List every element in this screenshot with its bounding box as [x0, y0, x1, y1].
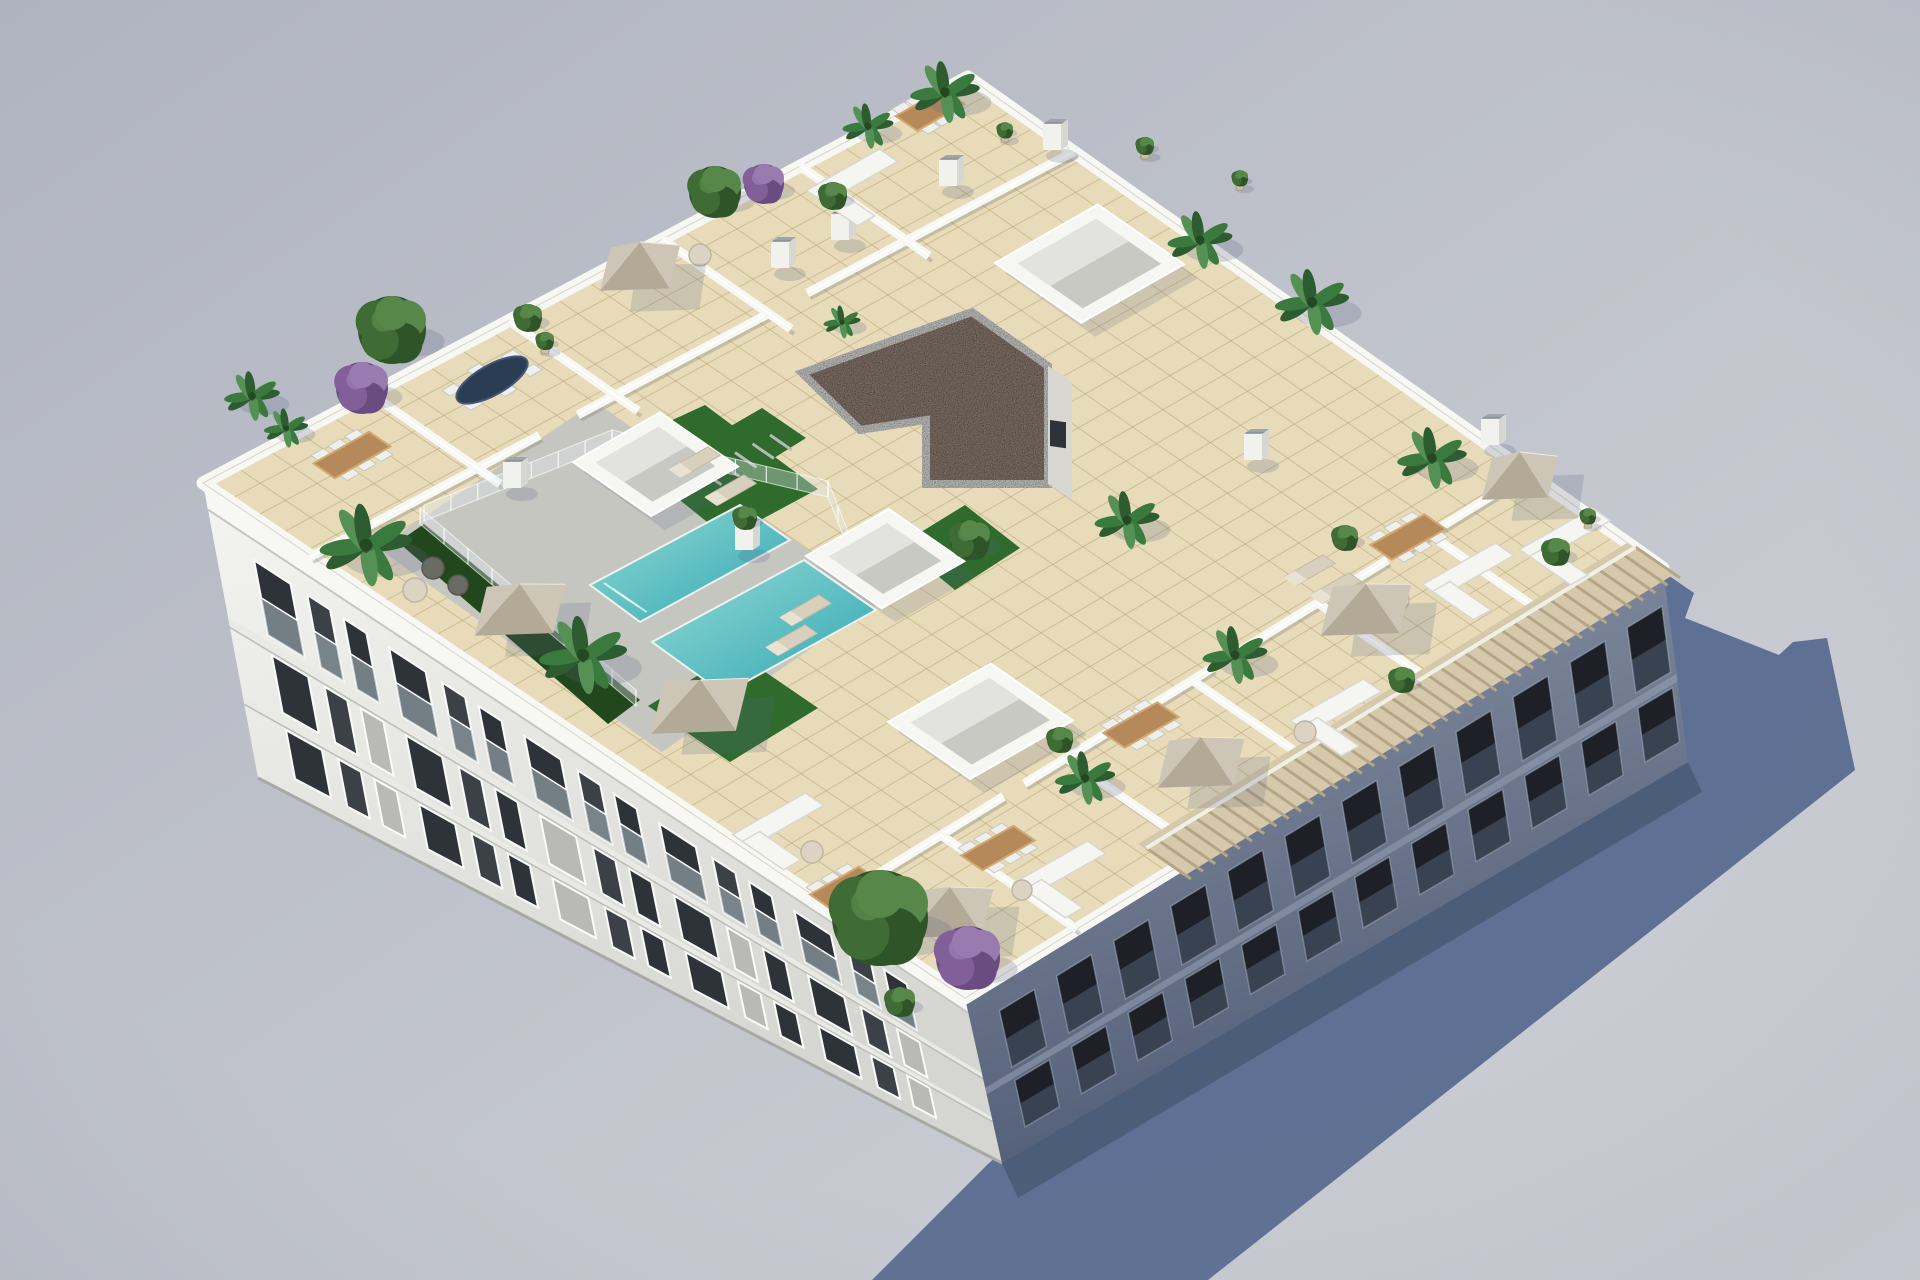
rooftop-aerial-render [0, 0, 1920, 1280]
vignette-overlay [0, 0, 1920, 1280]
render-canvas [0, 0, 1920, 1280]
